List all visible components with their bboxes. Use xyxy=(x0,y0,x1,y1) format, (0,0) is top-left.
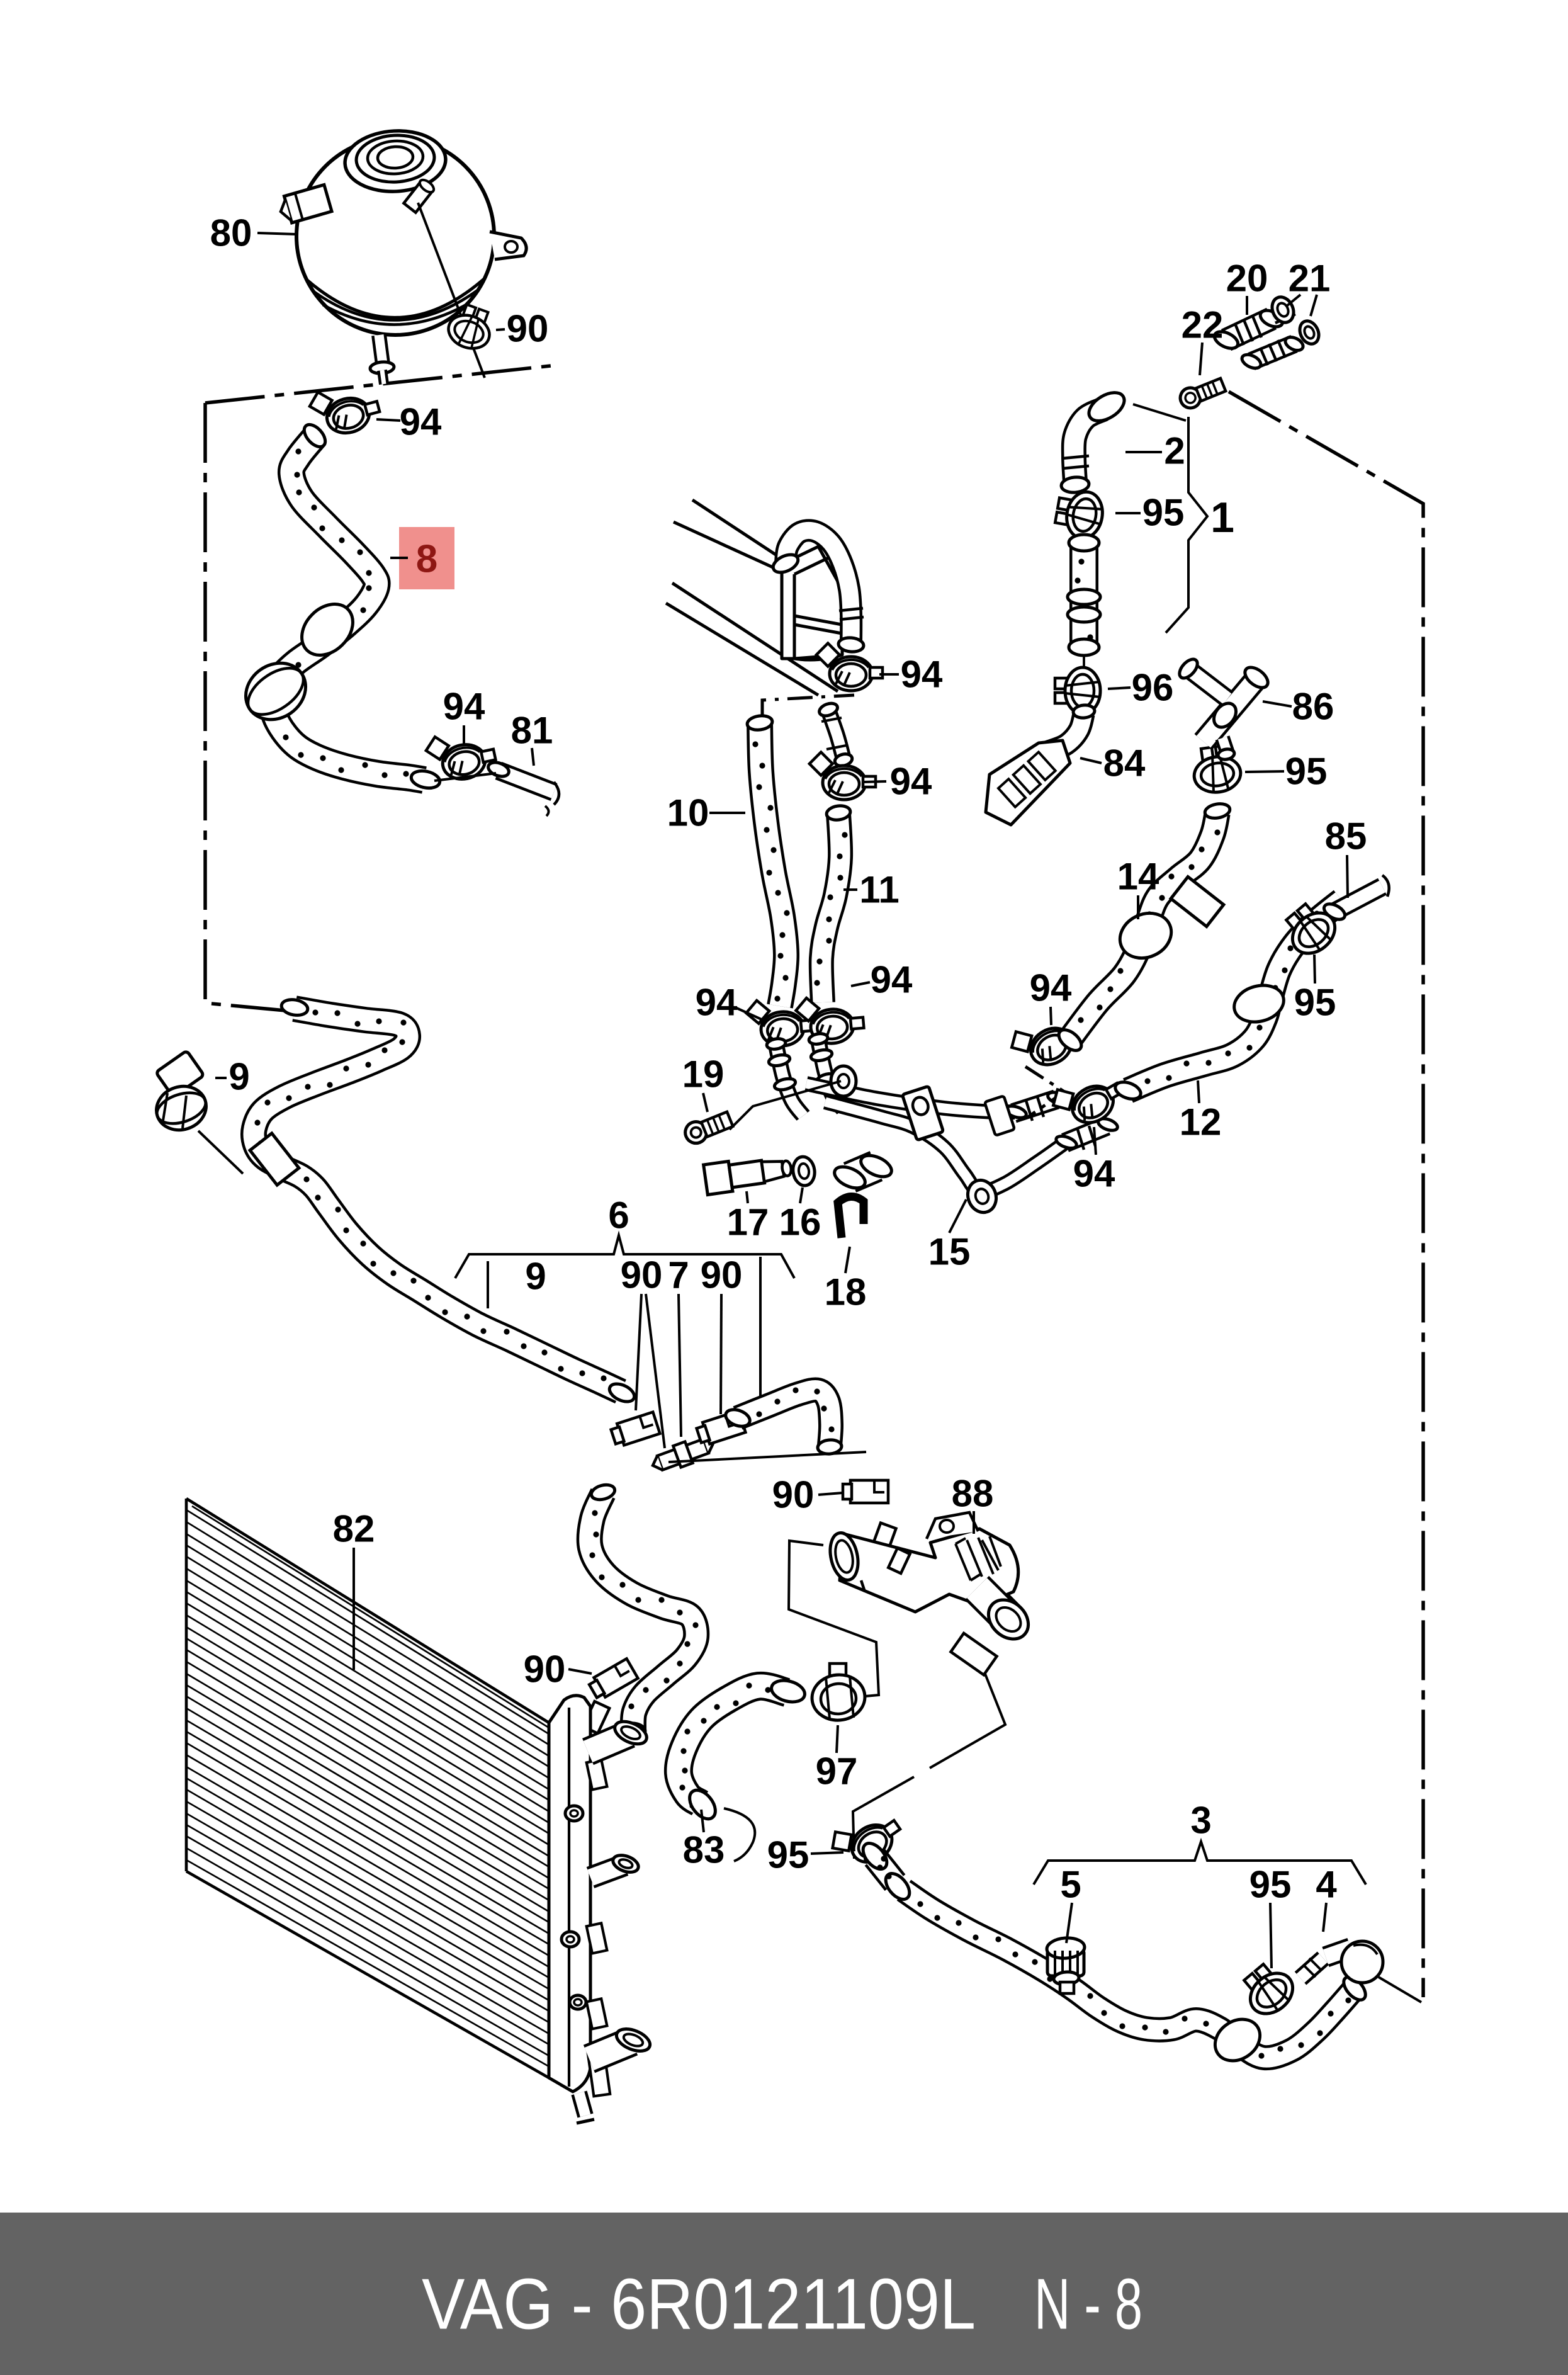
svg-text:94: 94 xyxy=(1073,1153,1115,1195)
svg-text:81: 81 xyxy=(511,710,553,752)
svg-text:97: 97 xyxy=(816,1750,858,1793)
svg-text:94: 94 xyxy=(443,686,485,728)
svg-text:94: 94 xyxy=(696,982,738,1024)
svg-text:21: 21 xyxy=(1289,258,1331,300)
svg-text:12: 12 xyxy=(1180,1101,1222,1143)
svg-text:5: 5 xyxy=(1060,1864,1081,1906)
svg-text:90: 90 xyxy=(772,1474,815,1516)
svg-text:90: 90 xyxy=(524,1648,566,1691)
svg-text:80: 80 xyxy=(210,212,252,254)
svg-text:94: 94 xyxy=(901,654,943,696)
svg-text:95: 95 xyxy=(1285,751,1328,793)
svg-text:86: 86 xyxy=(1292,686,1334,728)
svg-text:85: 85 xyxy=(1325,815,1367,858)
svg-text:82: 82 xyxy=(333,1508,375,1550)
svg-text:8: 8 xyxy=(416,538,437,581)
svg-text:1: 1 xyxy=(1210,494,1234,541)
svg-text:96: 96 xyxy=(1132,667,1174,709)
svg-text:95: 95 xyxy=(1249,1864,1292,1906)
svg-text:90: 90 xyxy=(621,1254,663,1296)
svg-text:90: 90 xyxy=(701,1254,743,1296)
svg-text:94: 94 xyxy=(1030,967,1072,1009)
svg-text:95: 95 xyxy=(1142,492,1185,534)
svg-text:95: 95 xyxy=(1294,982,1336,1024)
svg-text:19: 19 xyxy=(682,1053,725,1096)
svg-text:N - 8: N - 8 xyxy=(1034,2265,1142,2345)
svg-text:10: 10 xyxy=(667,792,709,834)
svg-text:16: 16 xyxy=(779,1201,821,1244)
svg-text:20: 20 xyxy=(1226,258,1268,300)
svg-text:88: 88 xyxy=(952,1473,994,1515)
svg-text:18: 18 xyxy=(825,1271,867,1313)
svg-text:15: 15 xyxy=(928,1231,971,1273)
svg-text:90: 90 xyxy=(507,308,549,350)
svg-text:7: 7 xyxy=(668,1254,689,1296)
svg-text:VAG - 6R0121109L: VAG - 6R0121109L xyxy=(422,2265,976,2345)
svg-text:2: 2 xyxy=(1164,430,1185,472)
svg-text:94: 94 xyxy=(400,401,442,443)
svg-text:14: 14 xyxy=(1117,856,1159,898)
svg-text:3: 3 xyxy=(1190,1800,1211,1842)
svg-text:17: 17 xyxy=(727,1201,769,1244)
svg-text:9: 9 xyxy=(525,1256,546,1298)
svg-text:22: 22 xyxy=(1182,304,1224,346)
svg-text:6: 6 xyxy=(608,1194,629,1237)
svg-text:9: 9 xyxy=(228,1056,249,1098)
svg-text:11: 11 xyxy=(859,869,899,911)
svg-text:84: 84 xyxy=(1103,742,1146,785)
svg-text:94: 94 xyxy=(890,761,932,803)
svg-text:95: 95 xyxy=(767,1834,809,1876)
svg-text:4: 4 xyxy=(1316,1864,1337,1906)
svg-text:83: 83 xyxy=(683,1829,725,1871)
svg-text:94: 94 xyxy=(871,959,913,1001)
